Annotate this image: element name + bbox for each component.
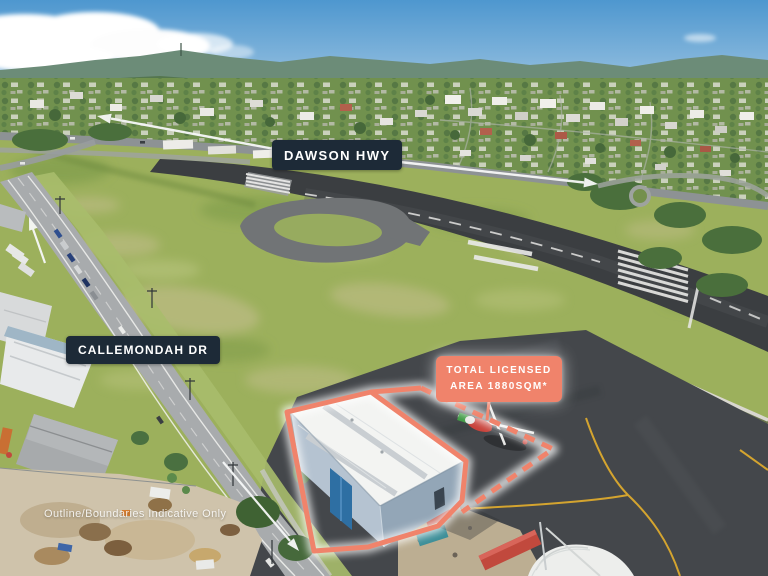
street-label-pill: CALLEMONDAH DR [66, 336, 220, 364]
licensed-area-pill: TOTAL LICENSED AREA 1880SQM* [436, 356, 562, 402]
highway-label-pill: DAWSON HWY [272, 140, 402, 170]
highway-label: DAWSON HWY [284, 148, 390, 163]
label-leader-line [487, 401, 489, 420]
disclaimer-text: Outline/Boundaries Indicative Only [44, 508, 226, 520]
aerial-scene [0, 0, 768, 576]
truck [196, 559, 215, 570]
licensed-area-line2: AREA 1880SQM* [450, 379, 548, 395]
aerial-photo: DAWSON HWY CALLEMONDAH DR TOTAL LICENSED… [0, 0, 768, 576]
licensed-area-line1: TOTAL LICENSED [446, 363, 551, 379]
street-label: CALLEMONDAH DR [78, 343, 208, 357]
